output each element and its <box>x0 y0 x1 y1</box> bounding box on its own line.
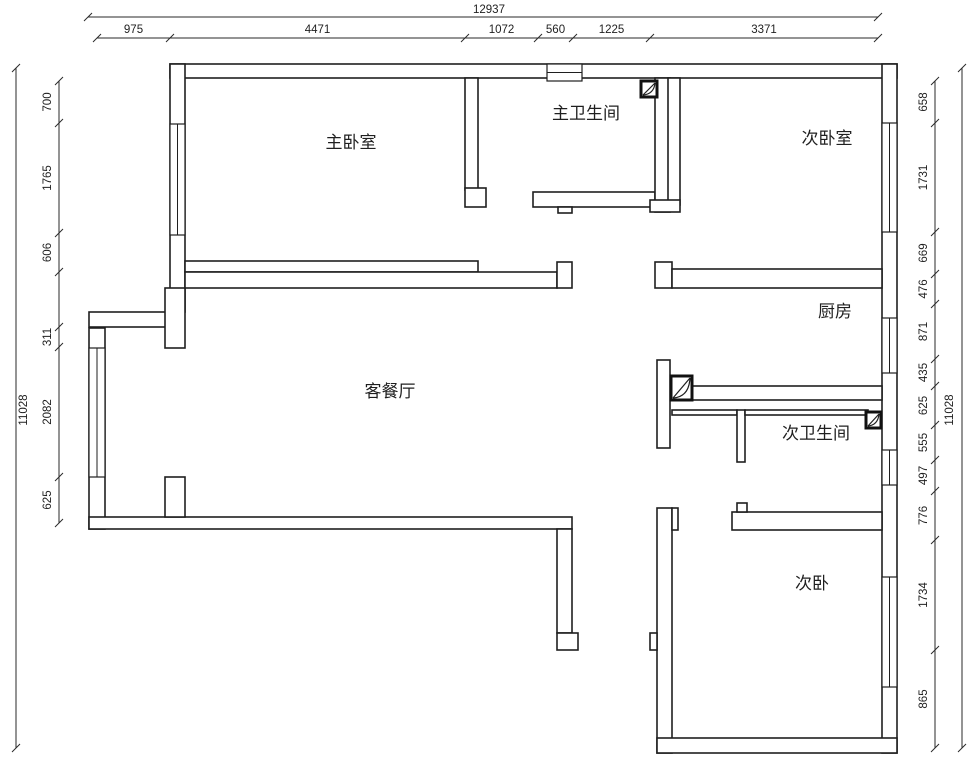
wall-segment <box>672 508 678 530</box>
wall-segment <box>737 410 745 462</box>
wall-segment <box>732 512 882 530</box>
dimension-value: 555 <box>918 433 930 452</box>
wall-segment <box>650 633 657 650</box>
dimension-value: 1765 <box>42 165 54 191</box>
room-label-kitchen: 厨房 <box>818 302 852 322</box>
dimension-value: 776 <box>918 506 930 525</box>
wall-segment <box>672 269 882 288</box>
dimension-overall-value: 11028 <box>944 394 956 425</box>
wall-segment <box>533 192 655 207</box>
wall-segment <box>558 207 572 213</box>
dimension-value: 1225 <box>599 24 625 36</box>
wall-segment <box>657 360 670 448</box>
dimension-overall-value: 12937 <box>473 4 505 16</box>
wall-segment <box>89 517 572 529</box>
floor-plan-drawing: 主卧室主卫生间次卧室厨房客餐厅次卫生间次卧1293797544711072560… <box>0 0 975 759</box>
wall-segment <box>668 78 680 205</box>
dimension-value: 625 <box>42 490 54 509</box>
room-label-second-bedroom-south: 次卧 <box>795 574 829 594</box>
wall-segment <box>692 386 882 400</box>
dimension-value: 476 <box>918 279 930 298</box>
wall-segment <box>165 288 185 348</box>
dimension-value: 311 <box>42 328 54 346</box>
dimension-value: 606 <box>42 243 54 262</box>
wall-segment <box>672 410 737 415</box>
dimension-value: 1731 <box>918 165 930 191</box>
wall-segment <box>165 477 185 517</box>
room-label-master-bathroom: 主卫生间 <box>552 104 620 124</box>
wall-segment <box>657 508 672 753</box>
wall-segment <box>657 738 897 753</box>
wall-segment <box>557 529 572 633</box>
dimension-value: 865 <box>918 689 930 708</box>
wall-segment <box>655 262 672 288</box>
dimension-value: 669 <box>918 243 930 262</box>
room-label-second-bathroom: 次卫生间 <box>782 424 850 444</box>
floor-plan-page: 主卧室主卫生间次卧室厨房客餐厅次卫生间次卧1293797544711072560… <box>0 0 975 759</box>
dimension-value: 625 <box>918 396 930 415</box>
dimension-value: 497 <box>918 466 930 485</box>
dimension-value: 975 <box>124 24 143 36</box>
wall-segment <box>185 261 478 272</box>
wall-segment <box>650 200 680 212</box>
room-label-master-bedroom: 主卧室 <box>326 133 377 153</box>
wall-segment <box>465 188 486 207</box>
wall-segment <box>89 312 170 327</box>
dimension-value: 560 <box>546 24 565 36</box>
dimension-value: 435 <box>918 363 930 382</box>
wall-segment <box>557 262 572 288</box>
dimension-value: 1072 <box>489 24 515 36</box>
wall-segment <box>737 503 747 512</box>
wall-segment <box>465 78 478 190</box>
room-label-second-bedroom: 次卧室 <box>802 129 853 149</box>
dimension-value: 700 <box>42 92 54 111</box>
wall-segment <box>170 64 897 78</box>
dimension-value: 2082 <box>42 399 54 425</box>
room-label-living-dining-room: 客餐厅 <box>365 382 416 402</box>
dimension-value: 871 <box>918 322 930 341</box>
dimension-value: 4471 <box>305 24 331 36</box>
dimension-value: 658 <box>918 92 930 111</box>
dimension-overall-value: 11028 <box>18 394 30 425</box>
wall-segment <box>745 410 868 415</box>
dimension-value: 1734 <box>918 582 930 608</box>
dimension-value: 3371 <box>751 24 777 36</box>
wall-segment <box>557 633 578 650</box>
wall-segment <box>185 272 557 288</box>
